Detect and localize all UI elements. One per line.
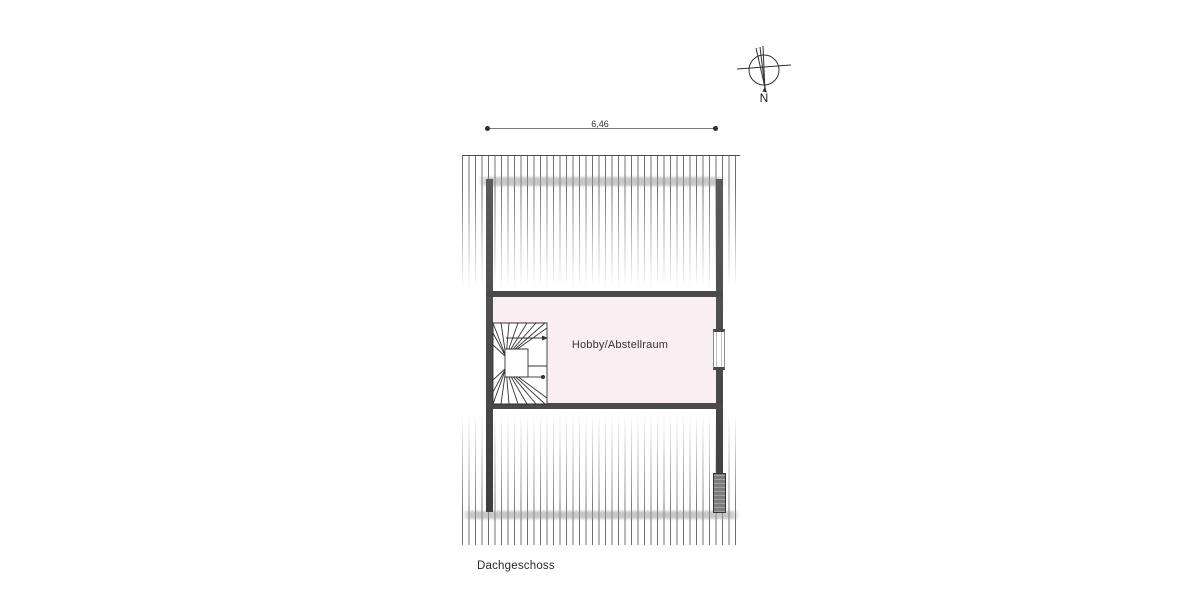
floorplan-canvas: 6,46 N Hobby/Abstellraum Dachgeschoss xyxy=(0,0,1200,600)
window-icon xyxy=(713,329,725,370)
staircase-icon xyxy=(486,320,552,410)
dimension-end-right xyxy=(713,126,718,131)
dimension-label: 6,46 xyxy=(560,119,640,129)
dimension-end-left xyxy=(485,126,490,131)
floor-title: Dachgeschoss xyxy=(477,560,555,572)
outer-wall-bottom-band xyxy=(462,511,740,519)
outer-wall-top-band xyxy=(478,177,726,186)
room-name-label: Hobby/Abstellraum xyxy=(560,339,680,351)
chimney-icon xyxy=(713,473,726,513)
compass-north-label: N xyxy=(752,91,776,105)
